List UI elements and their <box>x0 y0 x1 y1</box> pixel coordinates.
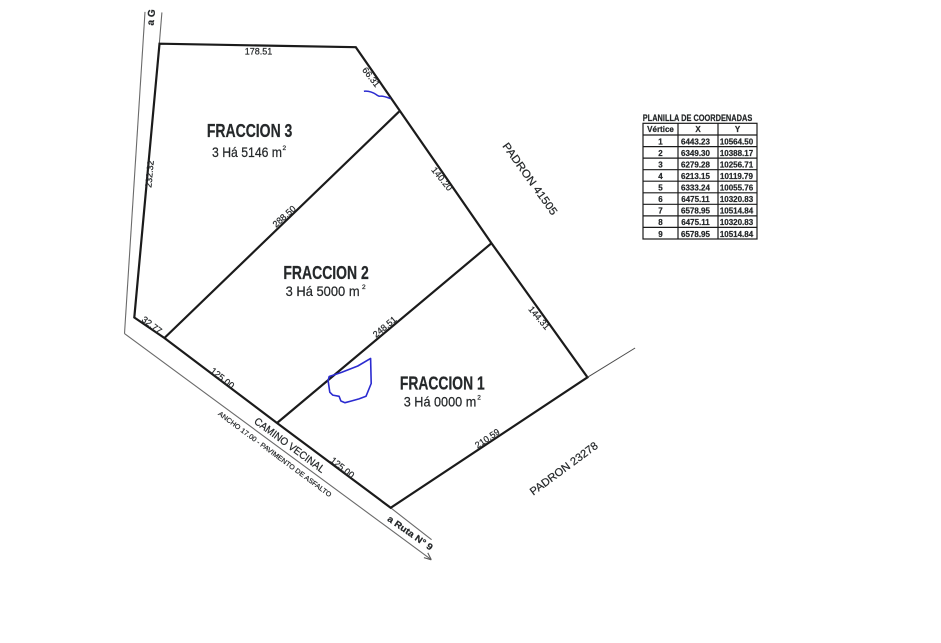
svg-text:10256.71: 10256.71 <box>720 161 754 170</box>
svg-text:FRACCION 3: FRACCION 3 <box>207 121 293 141</box>
svg-text:2: 2 <box>477 394 481 401</box>
svg-text:3 Há 5146 m: 3 Há 5146 m <box>212 144 282 160</box>
svg-text:6213.15: 6213.15 <box>681 172 710 181</box>
svg-text:7: 7 <box>658 207 663 216</box>
svg-text:10055.76: 10055.76 <box>720 184 754 193</box>
svg-text:2: 2 <box>362 284 366 291</box>
svg-text:ANCHO 17.00 - PAVIMENTO DE ASF: ANCHO 17.00 - PAVIMENTO DE ASFALTO <box>216 411 332 499</box>
svg-text:a G: a G <box>146 9 159 26</box>
svg-text:6279.28: 6279.28 <box>681 161 710 170</box>
svg-text:PADRON 23278: PADRON 23278 <box>528 440 601 498</box>
svg-text:FRACCION 1: FRACCION 1 <box>400 374 485 394</box>
svg-text:10320.83: 10320.83 <box>720 195 754 204</box>
svg-text:66.31: 66.31 <box>360 65 382 89</box>
svg-text:178.51: 178.51 <box>245 47 273 57</box>
svg-text:3: 3 <box>658 161 663 170</box>
svg-text:6: 6 <box>658 195 663 204</box>
svg-text:6349.30: 6349.30 <box>681 149 710 158</box>
svg-text:2: 2 <box>283 145 287 152</box>
svg-text:X: X <box>695 125 701 134</box>
svg-text:6578.95: 6578.95 <box>681 230 710 239</box>
svg-text:10514.84: 10514.84 <box>720 207 754 216</box>
svg-text:8: 8 <box>658 218 663 227</box>
svg-text:5: 5 <box>658 184 663 193</box>
svg-text:PADRON 41505: PADRON 41505 <box>500 141 560 218</box>
svg-text:9: 9 <box>658 230 663 239</box>
svg-text:288.50: 288.50 <box>271 204 298 230</box>
svg-text:6475.11: 6475.11 <box>681 195 710 204</box>
svg-text:140.20: 140.20 <box>429 165 454 193</box>
svg-text:232.32: 232.32 <box>143 160 155 188</box>
svg-text:10320.83: 10320.83 <box>720 218 754 227</box>
svg-text:125.00: 125.00 <box>328 455 356 480</box>
svg-text:6475.11: 6475.11 <box>681 218 710 227</box>
svg-text:FRACCION 2: FRACCION 2 <box>283 263 368 283</box>
svg-text:4: 4 <box>658 172 663 181</box>
svg-text:1: 1 <box>658 137 663 146</box>
svg-text:10514.84: 10514.84 <box>720 230 754 239</box>
svg-text:a Ruta N° 9: a Ruta N° 9 <box>386 514 435 553</box>
svg-text:248.51: 248.51 <box>371 314 399 339</box>
svg-text:Y: Y <box>735 125 741 134</box>
svg-text:125.00: 125.00 <box>208 366 236 391</box>
svg-text:3 Há 0000 m: 3 Há 0000 m <box>404 394 477 410</box>
svg-text:32.77: 32.77 <box>140 314 164 336</box>
svg-text:6443.23: 6443.23 <box>681 137 710 146</box>
svg-text:2: 2 <box>658 149 663 158</box>
svg-text:10119.79: 10119.79 <box>720 172 753 181</box>
svg-text:3 Há 5000 m: 3 Há 5000 m <box>286 283 360 299</box>
svg-text:6578.95: 6578.95 <box>681 207 710 216</box>
svg-text:10388.17: 10388.17 <box>720 149 754 158</box>
svg-text:Vértice: Vértice <box>647 125 674 134</box>
svg-text:PLANILLA DE COORDENADAS: PLANILLA DE COORDENADAS <box>643 113 753 124</box>
svg-text:6333.24: 6333.24 <box>681 184 710 193</box>
svg-text:210.59: 210.59 <box>473 427 501 451</box>
svg-text:10564.50: 10564.50 <box>720 137 754 146</box>
